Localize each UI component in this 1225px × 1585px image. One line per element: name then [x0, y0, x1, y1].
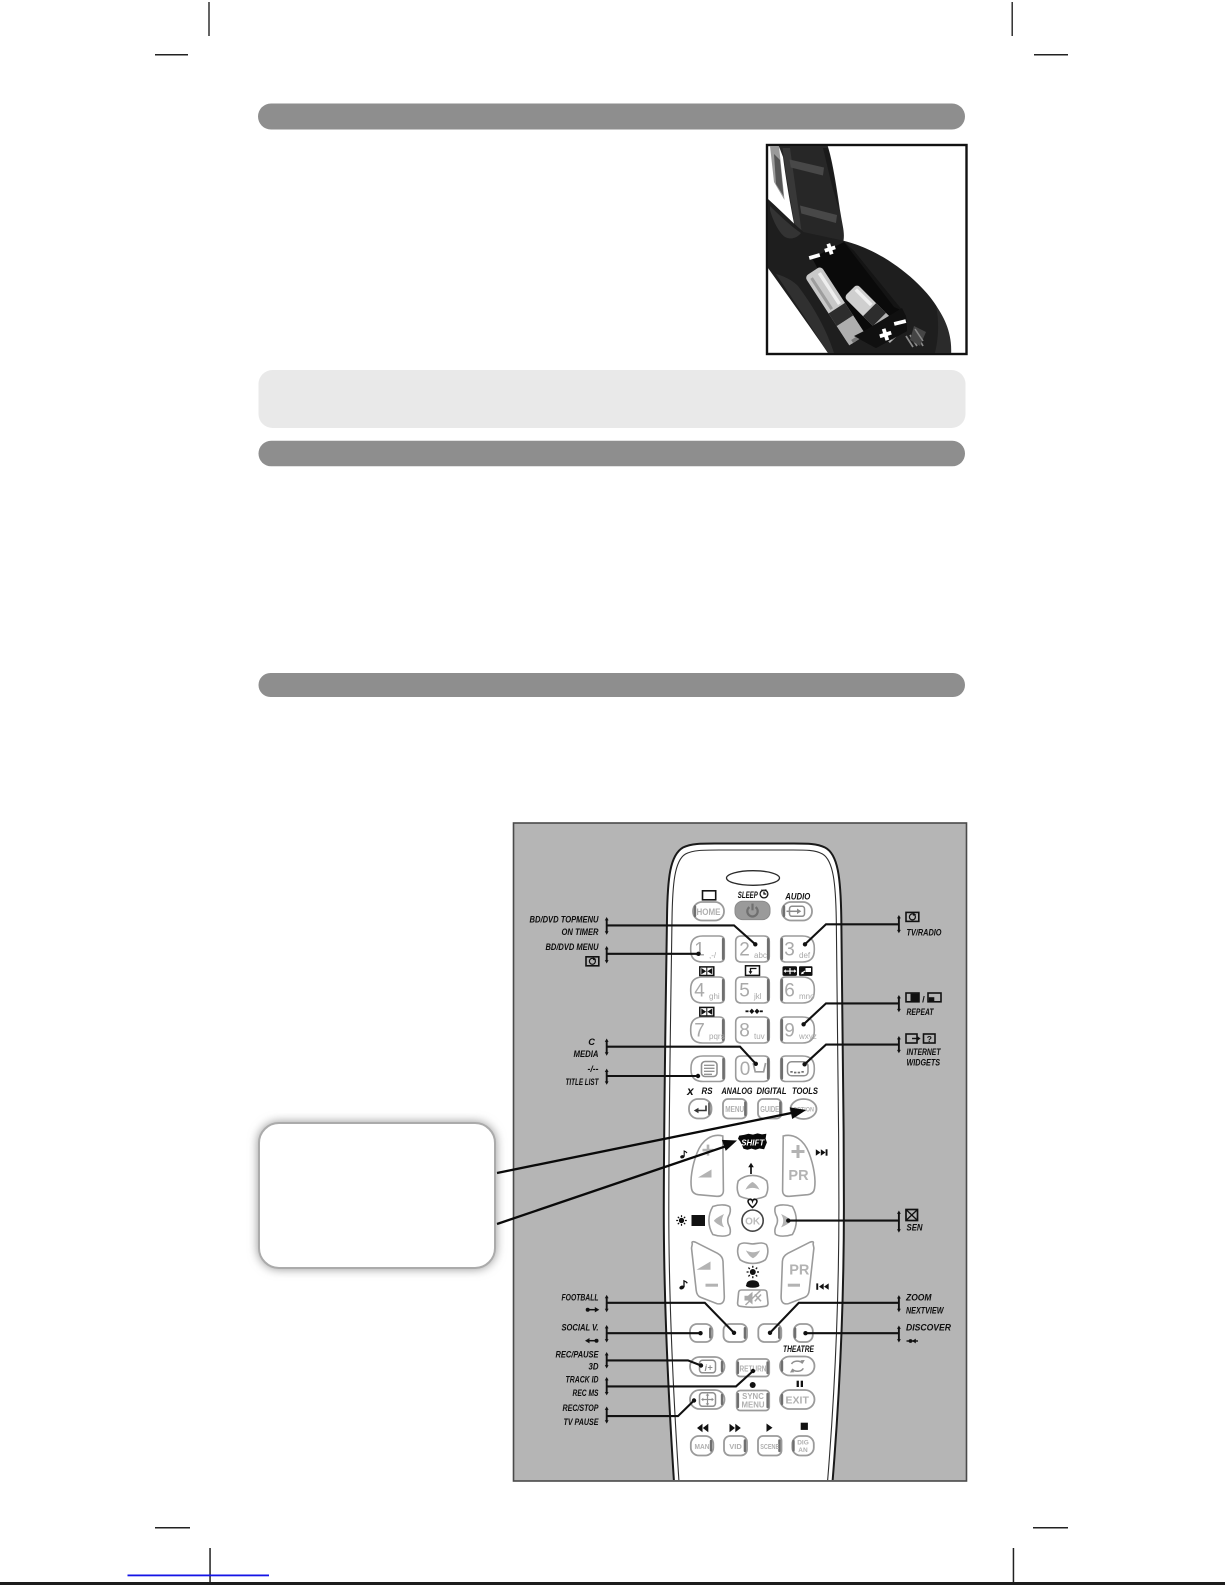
- svg-text:mno: mno: [799, 992, 815, 1001]
- svg-text:3D: 3D: [589, 1362, 599, 1372]
- svg-text:abc: abc: [754, 951, 767, 960]
- svg-text:/: /: [922, 994, 925, 1005]
- svg-text:INTERNET: INTERNET: [907, 1047, 942, 1057]
- svg-text:+: +: [708, 1363, 713, 1373]
- svg-text:8: 8: [739, 1021, 750, 1042]
- svg-text:4: 4: [694, 981, 705, 1002]
- svg-text:MENU: MENU: [742, 1400, 765, 1409]
- svg-text:ON TIMER: ON TIMER: [562, 927, 599, 937]
- svg-text:GUIDE: GUIDE: [760, 1104, 779, 1114]
- svg-text:FOOTBALL: FOOTBALL: [562, 1293, 599, 1303]
- svg-text:C: C: [588, 1037, 595, 1047]
- svg-text:2: 2: [739, 940, 750, 961]
- svg-text:OK: OK: [745, 1217, 761, 1228]
- svg-text:5: 5: [739, 981, 750, 1002]
- svg-text:REC/STOP: REC/STOP: [563, 1403, 600, 1413]
- svg-text:SLEEP: SLEEP: [738, 890, 759, 900]
- svg-text:def: def: [799, 951, 811, 960]
- svg-text:SEN: SEN: [907, 1223, 923, 1233]
- svg-text:TITLE LIST: TITLE LIST: [566, 1077, 600, 1087]
- svg-text:7: 7: [694, 1021, 705, 1042]
- svg-text:WIDGETS: WIDGETS: [907, 1058, 941, 1068]
- svg-text:x: x: [686, 1084, 695, 1098]
- svg-text:jkl: jkl: [753, 992, 762, 1001]
- svg-text:DIGITAL: DIGITAL: [757, 1086, 787, 1096]
- svg-text:ZOOM: ZOOM: [905, 1293, 932, 1303]
- svg-text:ghi: ghi: [709, 992, 720, 1001]
- svg-text:REC/PAUSE: REC/PAUSE: [556, 1350, 600, 1360]
- svg-text:DIG: DIG: [797, 1440, 809, 1447]
- svg-text:MAN: MAN: [695, 1442, 710, 1451]
- svg-text:AUDIO: AUDIO: [784, 891, 810, 901]
- svg-text:VID: VID: [729, 1442, 742, 1451]
- svg-text:TRACK ID: TRACK ID: [566, 1375, 599, 1385]
- svg-text:REC MS: REC MS: [573, 1388, 600, 1398]
- svg-text:EXIT: EXIT: [786, 1395, 810, 1407]
- svg-text:9: 9: [784, 1021, 795, 1042]
- svg-text:PR: PR: [788, 1168, 809, 1184]
- svg-text:TV/RADIO: TV/RADIO: [907, 928, 943, 938]
- svg-text:,-/: ,-/: [709, 951, 717, 960]
- svg-text:3: 3: [784, 940, 795, 961]
- svg-text:?: ?: [927, 1034, 932, 1044]
- svg-text:1: 1: [694, 940, 705, 961]
- svg-text:SCENE: SCENE: [760, 1444, 779, 1451]
- svg-text:ANALOG: ANALOG: [721, 1086, 753, 1096]
- svg-text:RS: RS: [702, 1086, 714, 1096]
- svg-text:SHIFT: SHIFT: [741, 1137, 765, 1147]
- svg-text:HOME: HOME: [697, 907, 721, 918]
- svg-text:DISCOVER: DISCOVER: [906, 1323, 951, 1333]
- svg-text:TV PAUSE: TV PAUSE: [564, 1417, 600, 1427]
- svg-text:MENU: MENU: [725, 1104, 744, 1114]
- svg-text:0: 0: [740, 1059, 751, 1080]
- svg-text:THEATRE: THEATRE: [783, 1344, 815, 1354]
- svg-text:PR: PR: [789, 1263, 810, 1279]
- svg-text:wxyz: wxyz: [798, 1032, 817, 1041]
- svg-text:NEXTVIEW: NEXTVIEW: [906, 1306, 944, 1316]
- svg-text:BD/DVD MENU: BD/DVD MENU: [546, 942, 599, 952]
- svg-text:REPEAT: REPEAT: [907, 1007, 935, 1017]
- svg-text:AN: AN: [798, 1447, 808, 1454]
- svg-text:BD/DVD TOPMENU: BD/DVD TOPMENU: [530, 915, 599, 925]
- svg-text:TOOLS: TOOLS: [792, 1086, 819, 1096]
- svg-text:pqrs: pqrs: [709, 1032, 725, 1041]
- svg-text:SOCIAL V.: SOCIAL V.: [562, 1323, 599, 1333]
- svg-text:6: 6: [784, 981, 795, 1002]
- svg-text:-/--: -/--: [588, 1064, 599, 1074]
- svg-text:tuv: tuv: [754, 1032, 765, 1041]
- svg-text:MEDIA: MEDIA: [574, 1049, 599, 1059]
